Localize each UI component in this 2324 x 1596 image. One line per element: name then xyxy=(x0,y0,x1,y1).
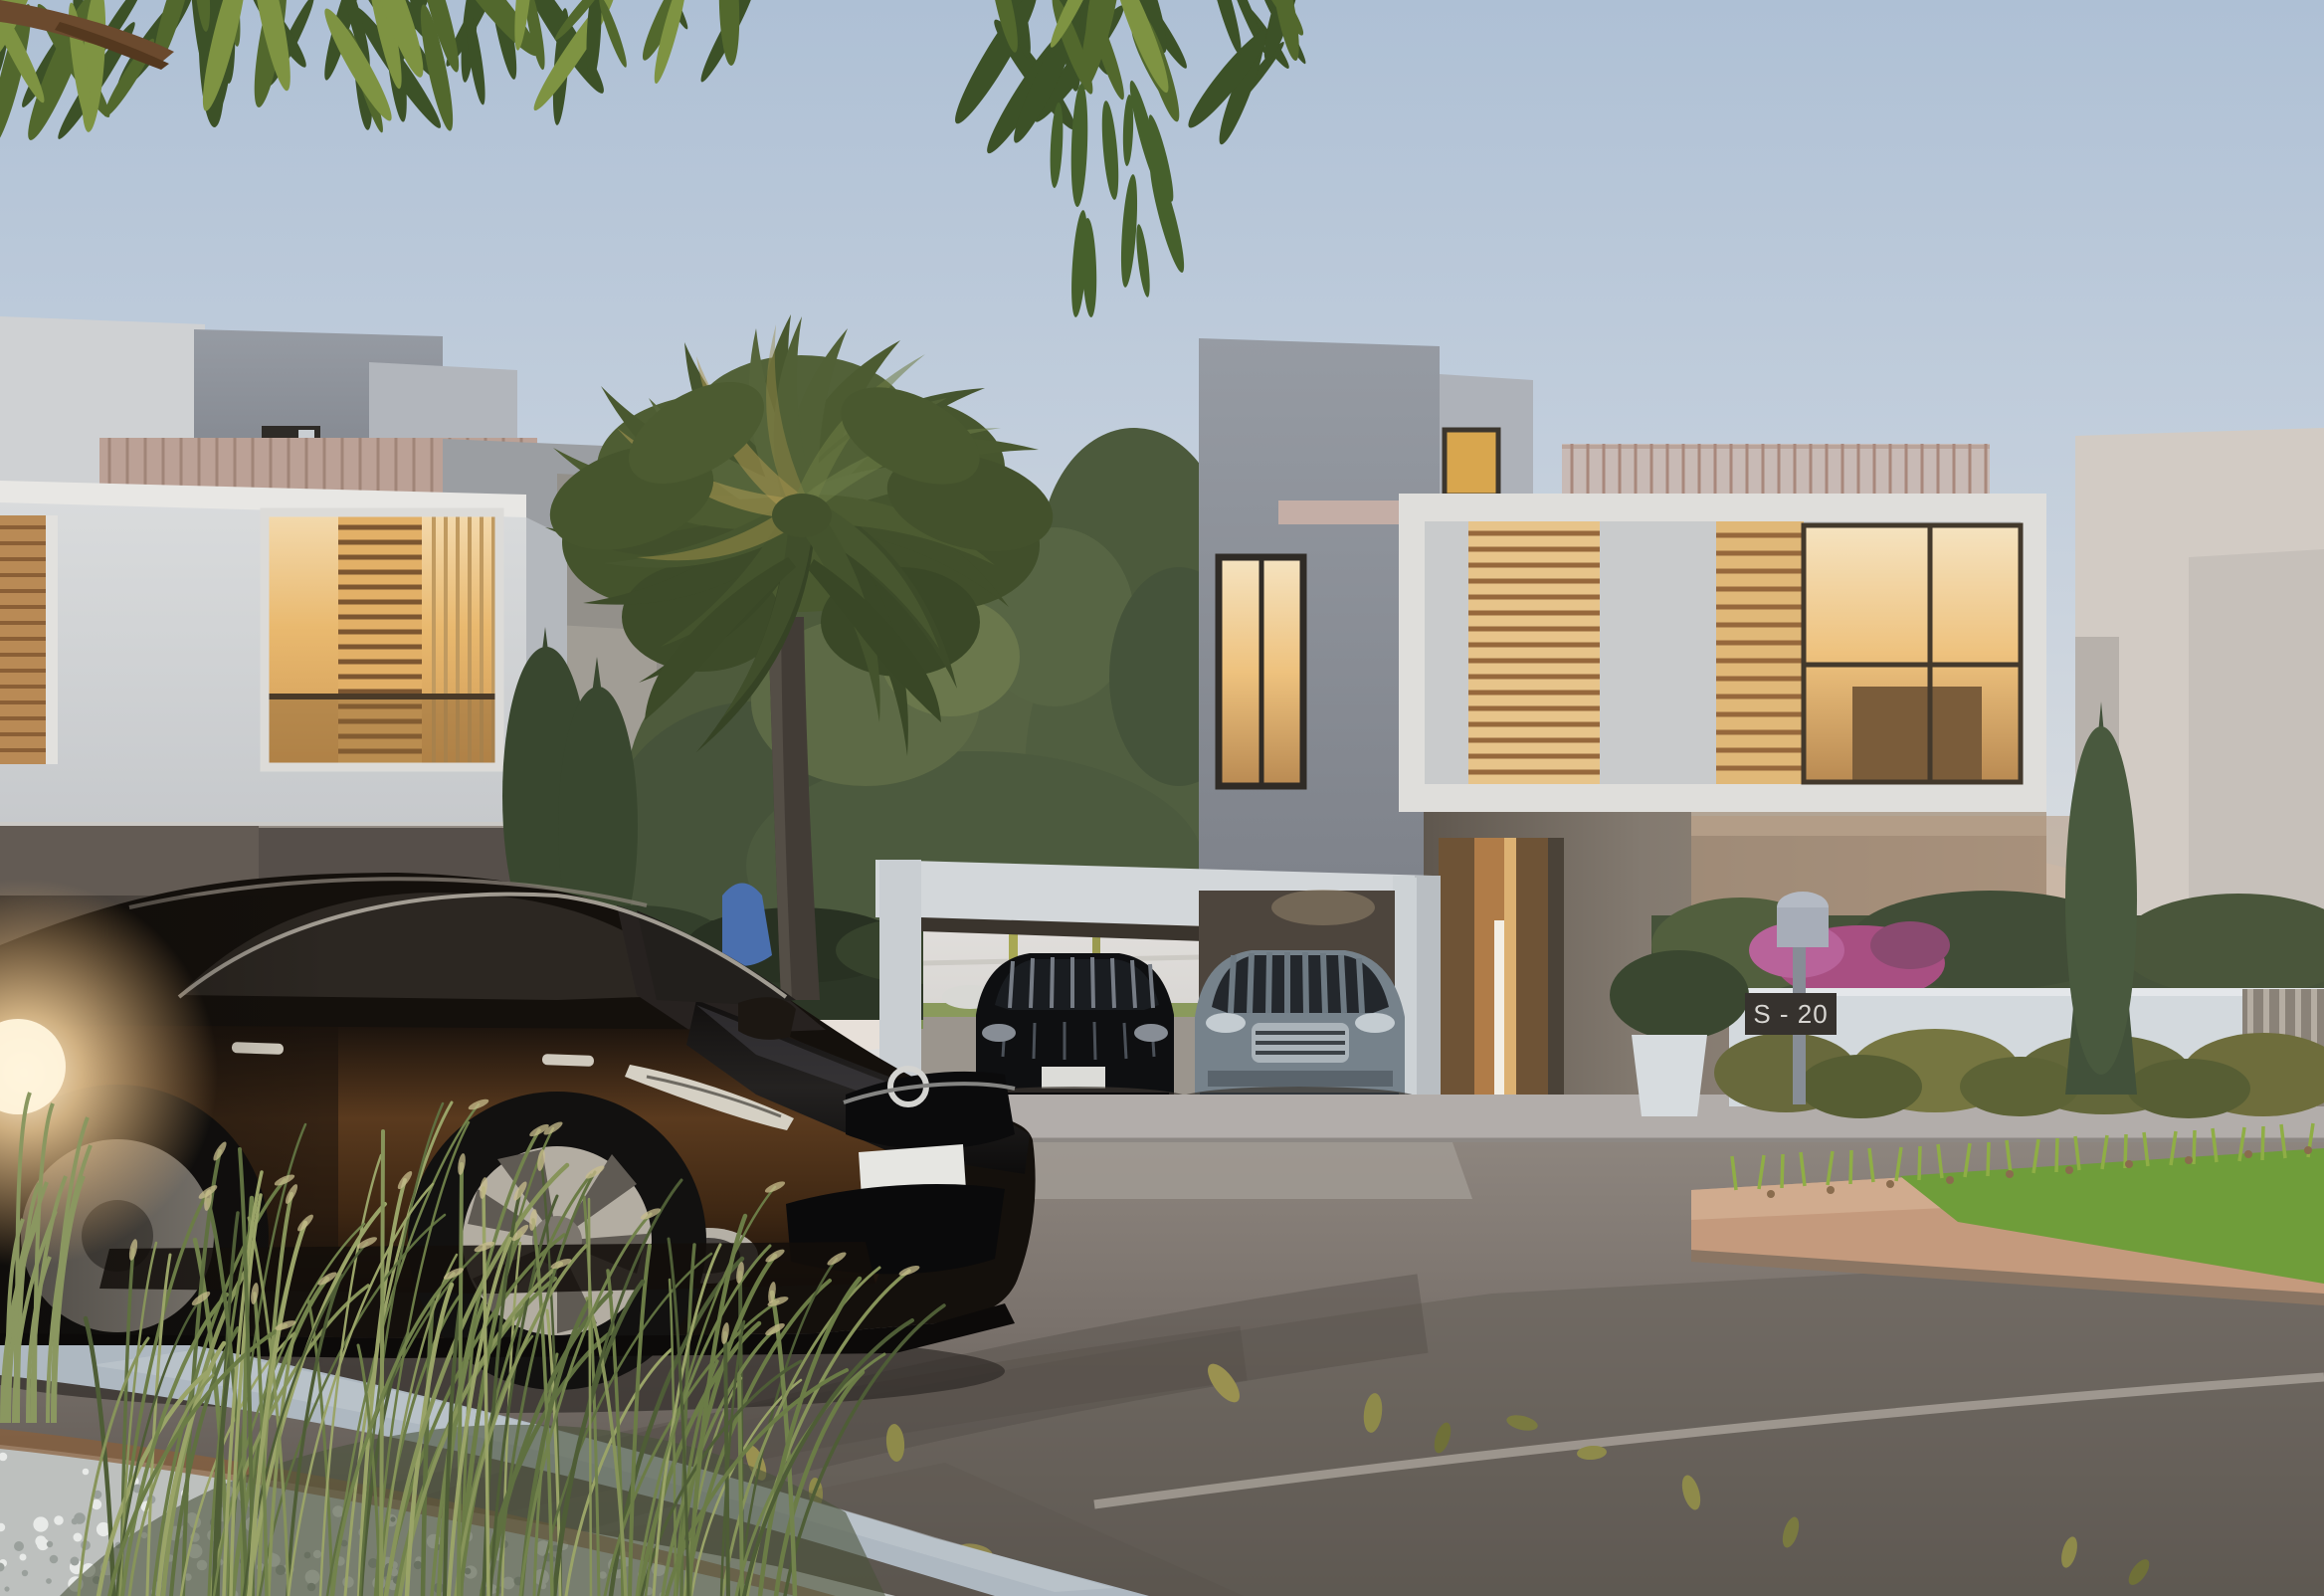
svg-text:S - 20: S - 20 xyxy=(1753,999,1828,1029)
